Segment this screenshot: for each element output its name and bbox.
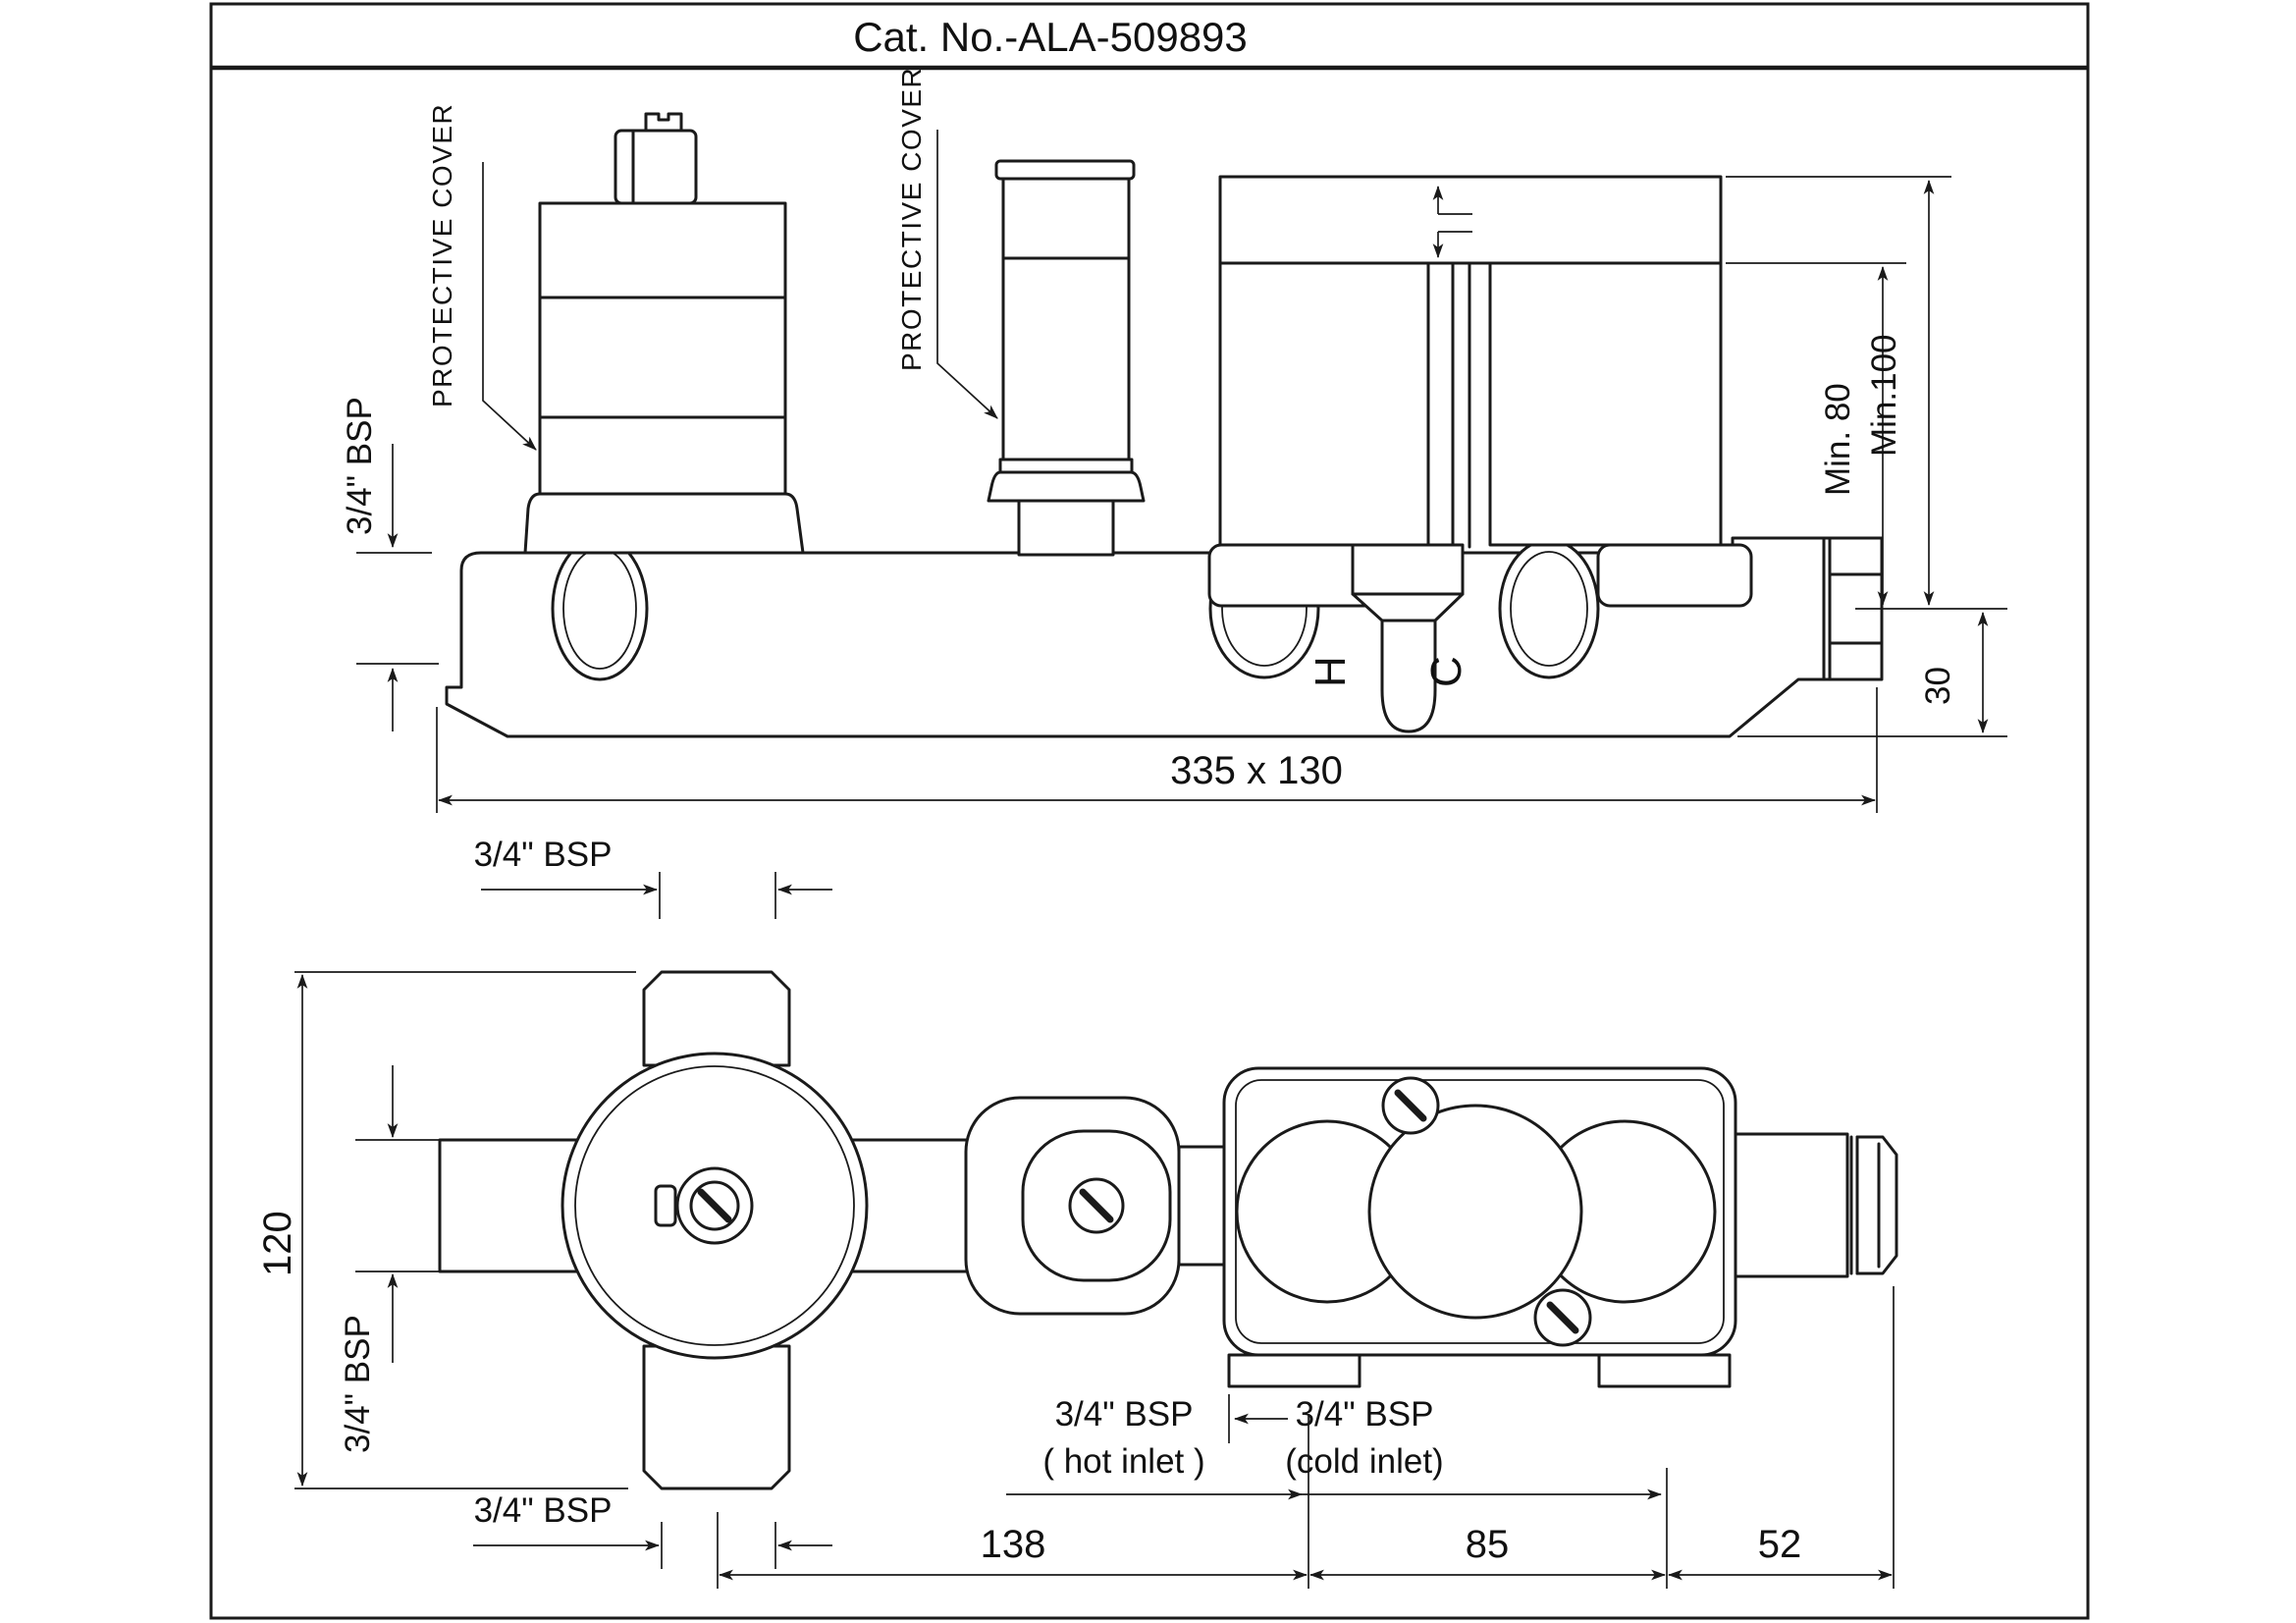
- dim-bsp-top-group: 3/4" BSP: [474, 836, 832, 919]
- sensor-stem: [1353, 545, 1463, 594]
- port-left-ellipse: [553, 538, 647, 679]
- leader-protective-cover-mid: PROTECTIVE COVER: [896, 67, 997, 418]
- drawing-frame: Cat. No.-ALA-509893: [211, 4, 2088, 1618]
- overall-label: 335 x 130: [1170, 749, 1343, 792]
- hot-inlet-callout: 3/4" BSP ( hot inlet ): [1006, 1395, 1302, 1494]
- hot-inlet-line1: 3/4" BSP: [1055, 1395, 1194, 1434]
- cover2-cap: [996, 161, 1134, 179]
- protective-cover-mid-label: PROTECTIVE COVER: [896, 67, 927, 371]
- top-port: [644, 972, 789, 1065]
- outlet-plan: [1735, 1134, 1896, 1276]
- cover2-body: [1003, 179, 1129, 460]
- bsp-top-label: 3/4" BSP: [474, 836, 613, 874]
- bsp-arm-label: 3/4" BSP: [339, 1315, 377, 1453]
- cover1-body: [540, 203, 785, 494]
- spindle-tab: [656, 1186, 675, 1225]
- block-right: [1490, 263, 1721, 545]
- plan-view: 120 3/4" BSP 3/4" BSP 3/4" BSP: [256, 836, 1896, 1589]
- cold-inlet-callout: 3/4" BSP (cold inlet): [1229, 1394, 1661, 1494]
- dim138-label: 138: [981, 1523, 1046, 1566]
- cover2-neck: [1019, 501, 1113, 555]
- bsp-left-label: 3/4" BSP: [341, 397, 379, 535]
- dim-bsp-arm-group: 3/4" BSP: [339, 1065, 444, 1453]
- bsp-bottom-label: 3/4" BSP: [474, 1491, 613, 1530]
- dim120-label: 120: [256, 1211, 299, 1276]
- leader-line: [937, 130, 997, 418]
- collar-right: [1598, 545, 1751, 606]
- dim30-label: 30: [1919, 667, 1957, 705]
- block-left: [1220, 263, 1428, 545]
- min80-label: Min. 80: [1819, 383, 1857, 496]
- outlet-pipe: [1735, 1134, 1847, 1276]
- hot-inlet-line2: ( hot inlet ): [1042, 1442, 1204, 1481]
- dim52-label: 52: [1758, 1523, 1802, 1566]
- cold-inlet-line1: 3/4" BSP: [1296, 1395, 1434, 1434]
- diverter-valve-plan: [440, 972, 975, 1488]
- cover1-skirt: [525, 494, 803, 553]
- stop-valve-plan: [966, 1098, 1224, 1314]
- drawing-title: Cat. No.-ALA-509893: [853, 14, 1248, 60]
- plate-foot-left: [1229, 1355, 1360, 1386]
- protective-cover-left-label: PROTECTIVE COVER: [427, 103, 457, 407]
- stop-valve-side: [988, 161, 1144, 555]
- border: [211, 4, 2088, 1618]
- cartridge-plate-plan: [1224, 1068, 1735, 1386]
- cover2-ring-band: [1000, 460, 1132, 472]
- leader-protective-cover-left: PROTECTIVE COVER: [427, 103, 536, 450]
- dim-bsp-bottom-group: 3/4" BSP: [473, 1491, 832, 1569]
- leader-line: [483, 162, 536, 450]
- diverter-valve-side: [525, 114, 803, 553]
- cover1-knob: [646, 114, 681, 131]
- scallop-middle: [1369, 1106, 1581, 1318]
- port-cold-ellipse: [1500, 540, 1598, 677]
- dim85-label: 85: [1466, 1523, 1510, 1566]
- side-elevation-view: H C PROTECTIVE COVER PROTECTIVE COVER 3/…: [341, 67, 2007, 813]
- min100-label: Min.100: [1865, 334, 1903, 457]
- dim-bsp-left-side: 3/4" BSP: [341, 397, 439, 731]
- plate-foot-right: [1599, 1355, 1730, 1386]
- cover1-cap: [615, 131, 696, 203]
- drawing-sheet: Cat. No.-ALA-509893: [0, 0, 2296, 1623]
- connector-neck: [1179, 1147, 1224, 1265]
- block-top-slab: [1220, 177, 1721, 263]
- cold-marker-letter: C: [1422, 656, 1470, 687]
- bottom-port: [644, 1346, 789, 1488]
- cover2-skirt: [988, 472, 1144, 501]
- technical-drawing: Cat. No.-ALA-509893: [0, 0, 2296, 1623]
- hot-marker-letter: H: [1307, 656, 1355, 687]
- outlet-nut: [1857, 1137, 1896, 1273]
